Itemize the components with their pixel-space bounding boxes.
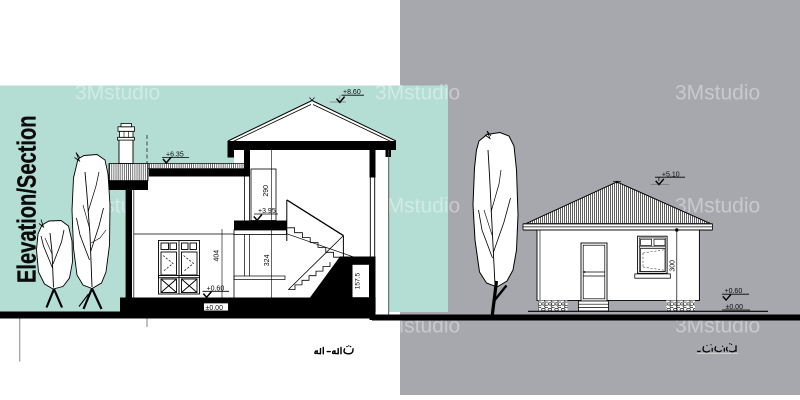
svg-text:404: 404 <box>214 250 221 262</box>
svg-text:157.5: 157.5 <box>355 272 362 289</box>
svg-text:Elevation/Section: Elevation/Section <box>14 116 42 284</box>
svg-text:300: 300 <box>670 260 677 272</box>
svg-text:3Mstudio: 3Mstudio <box>375 82 460 105</box>
svg-text:3Mstudio: 3Mstudio <box>75 82 160 105</box>
svg-text:290: 290 <box>263 185 270 197</box>
svg-text:324: 324 <box>264 254 271 266</box>
svg-text:±0.00: ±0.00 <box>206 305 224 312</box>
svg-text:3Mstudio: 3Mstudio <box>675 82 760 105</box>
